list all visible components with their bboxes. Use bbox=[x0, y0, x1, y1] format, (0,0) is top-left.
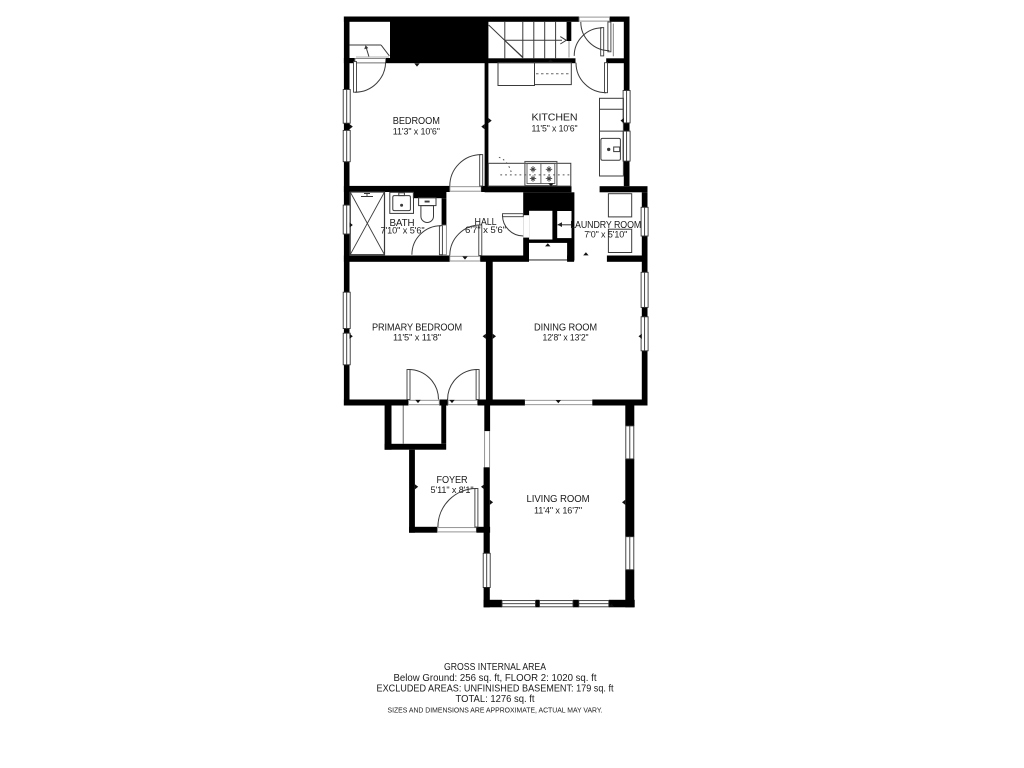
svg-text:11'3" x 10'6": 11'3" x 10'6" bbox=[393, 127, 440, 137]
svg-text:LIVING ROOM: LIVING ROOM bbox=[527, 493, 590, 505]
svg-text:6'7" x 5'6": 6'7" x 5'6" bbox=[465, 225, 506, 235]
svg-text:11'5" x 10'6": 11'5" x 10'6" bbox=[532, 124, 578, 134]
svg-text:7'0" x 5'10": 7'0" x 5'10" bbox=[584, 229, 627, 239]
svg-text:TOTAL: 1276 sq. ft: TOTAL: 1276 sq. ft bbox=[456, 694, 535, 705]
svg-text:Below Ground: 256 sq. ft, FLOO: Below Ground: 256 sq. ft, FLOOR 2: 1020 … bbox=[394, 673, 597, 684]
svg-text:12'8" x 13'2": 12'8" x 13'2" bbox=[543, 333, 589, 343]
svg-text:GROSS INTERNAL AREA: GROSS INTERNAL AREA bbox=[444, 662, 546, 673]
svg-text:5'11" x 8'1": 5'11" x 8'1" bbox=[431, 485, 474, 495]
svg-text:KITCHEN: KITCHEN bbox=[532, 112, 578, 124]
svg-text:BEDROOM: BEDROOM bbox=[393, 115, 440, 127]
svg-text:11'4" x 16'7": 11'4" x 16'7" bbox=[534, 506, 582, 516]
svg-text:SIZES AND DIMENSIONS ARE APPRO: SIZES AND DIMENSIONS ARE APPROXIMATE, AC… bbox=[388, 706, 603, 715]
svg-text:7'10" x 5'6": 7'10" x 5'6" bbox=[381, 226, 425, 236]
svg-text:11'5" x 11'8": 11'5" x 11'8" bbox=[393, 333, 441, 343]
